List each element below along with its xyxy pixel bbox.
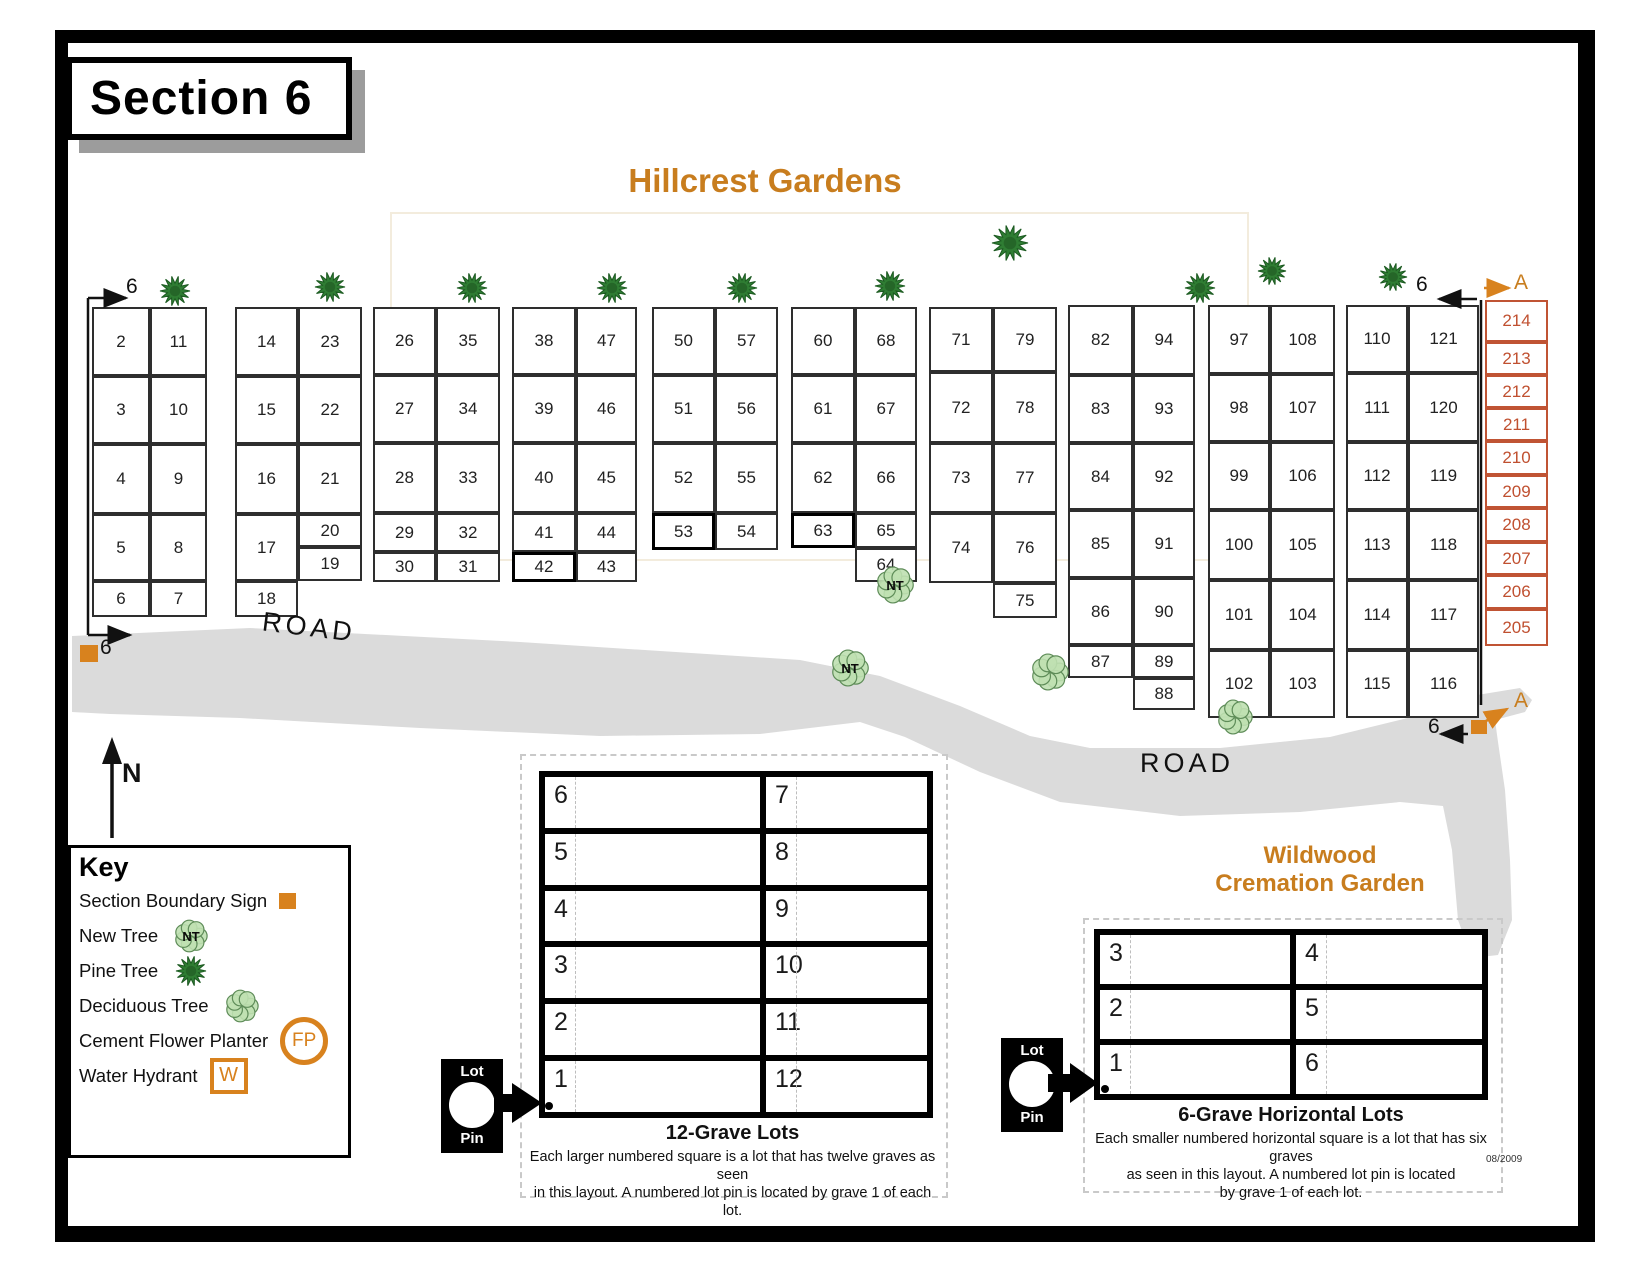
map-label-6: 6 [1428, 716, 1440, 737]
grave1-pin-dot-12 [545, 1102, 553, 1110]
map-label-a: A [1514, 690, 1528, 711]
cemetery-section-map: 2113104958671423152216211720191826352734… [0, 0, 1650, 1275]
map-label-6: 6 [100, 637, 112, 658]
map-label-n: N [122, 760, 142, 787]
lot-pin-arrow-12 [494, 1083, 542, 1123]
map-label-a: A [1514, 272, 1528, 293]
section-boundary-sign-icon [80, 645, 98, 662]
map-label-road: ROAD [1140, 750, 1234, 777]
map-label-6: 6 [126, 276, 138, 297]
map-label-6: 6 [1416, 274, 1428, 295]
lot-pin-arrow-6 [1048, 1063, 1098, 1103]
line-layer [0, 0, 1650, 1275]
north-arrow [102, 737, 122, 838]
a-bottom-arrow [1486, 709, 1507, 721]
grave1-pin-dot-6 [1101, 1085, 1109, 1093]
section-boundary-sign-icon [1471, 720, 1487, 734]
date-stamp: 08/2009 [1486, 1154, 1522, 1165]
